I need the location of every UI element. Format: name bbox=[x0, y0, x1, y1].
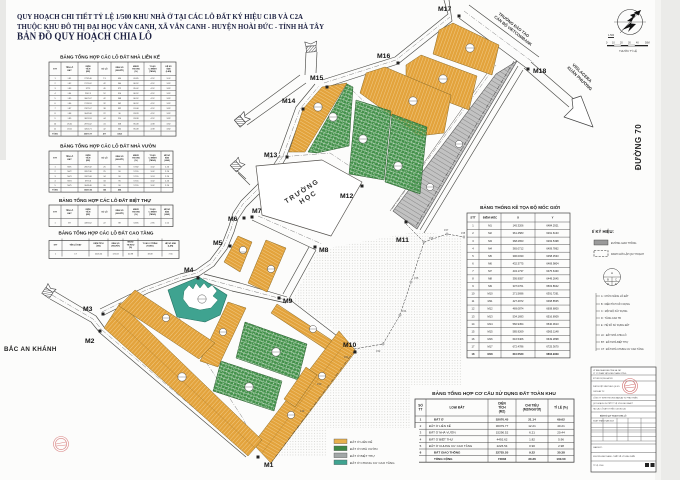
svg-text:M3: M3 bbox=[488, 239, 492, 243]
svg-text:(LẦN): (LẦN) bbox=[164, 159, 170, 162]
svg-text:X: X bbox=[517, 215, 519, 219]
svg-text:3042.08: 3042.08 bbox=[84, 113, 92, 115]
svg-text:B: B bbox=[607, 278, 609, 282]
svg-text:M18: M18 bbox=[533, 68, 546, 75]
svg-text:155: 155 bbox=[414, 276, 419, 280]
svg-text:HỆ SỐ: HỆ SỐ bbox=[164, 208, 171, 211]
svg-text:ĐẤT Ở CHUNG CƯ CAO TẦNG: ĐẤT Ở CHUNG CƯ CAO TẦNG bbox=[429, 443, 473, 448]
svg-text:2226.54: 2226.54 bbox=[95, 253, 103, 255]
svg-text:BẢNG THỐNG KÊ TỌA ĐỘ MỐC GIỚI: BẢNG THỐNG KÊ TỌA ĐỘ MỐC GIỚI bbox=[480, 203, 560, 210]
svg-text:BT : ĐẤT NHÀ BIỆT THỰ: BT : ĐẤT NHÀ BIỆT THỰ bbox=[601, 341, 628, 344]
svg-text:2171.02: 2171.02 bbox=[84, 83, 92, 85]
svg-text:ĐẤT Ở LIÊN KẾ: ĐẤT Ở LIÊN KẾ bbox=[429, 423, 451, 428]
svg-text:M15: M15 bbox=[310, 75, 323, 82]
svg-text:(%): (%) bbox=[129, 247, 132, 249]
svg-text:M4: M4 bbox=[488, 246, 492, 250]
svg-text:LK : ĐẤT NHÀ CHIA LÔ: LK : ĐẤT NHÀ CHIA LÔ bbox=[601, 334, 627, 337]
svg-text:6291.6133: 6291.6133 bbox=[546, 231, 559, 235]
svg-text:NGUYỄN VĂN THÀNH - THIẾT KẾ: V: NGUYỄN VĂN THÀNH - THIẾT KẾ: VŨ VĂN CHIẾ… bbox=[593, 455, 636, 458]
svg-text:NGÀY THÁNG NĂM 2008: NGÀY THÁNG NĂM 2008 bbox=[593, 420, 614, 423]
svg-text:5.96: 5.96 bbox=[558, 437, 564, 441]
svg-text:(M2/NGƯỜI): (M2/NGƯỜI) bbox=[523, 407, 541, 412]
svg-text:85.02: 85.02 bbox=[133, 88, 139, 90]
svg-text:(M2): (M2) bbox=[86, 160, 90, 162]
svg-text:6484.2921: 6484.2921 bbox=[546, 224, 559, 228]
svg-text:616.5406: 616.5406 bbox=[513, 337, 524, 341]
svg-text:365.0712: 365.0712 bbox=[513, 246, 524, 250]
svg-text:C.TRÌNH: C.TRÌNH bbox=[148, 68, 157, 71]
svg-text:469.0874: 469.0874 bbox=[513, 307, 524, 311]
svg-text:3202.71: 3202.71 bbox=[84, 128, 92, 130]
svg-text:(NGƯỜI): (NGƯỜI) bbox=[111, 245, 120, 248]
svg-text:(LẦN): (LẦN) bbox=[166, 70, 172, 73]
svg-text:6565.1148: 6565.1148 bbox=[546, 329, 559, 333]
svg-text:M17: M17 bbox=[438, 6, 451, 13]
svg-text:52070.45: 52070.45 bbox=[496, 418, 509, 422]
svg-text:BẢNG TỔNG HỢP CÁC LÔ ĐẤT NHÀ V: BẢNG TỔNG HỢP CÁC LÔ ĐẤT NHÀ VƯỜN bbox=[60, 142, 156, 149]
svg-text:BẢNG TỔNG HỢP CÁC LÔ ĐẤT NHÀ L: BẢNG TỔNG HỢP CÁC LÔ ĐẤT NHÀ LIÊN KẾ bbox=[60, 53, 160, 60]
svg-text:83.38: 83.38 bbox=[133, 118, 139, 120]
svg-text:TÍCH: TÍCH bbox=[86, 68, 91, 71]
svg-text:M11: M11 bbox=[488, 299, 493, 303]
svg-text:2.98: 2.98 bbox=[558, 444, 564, 448]
svg-text:M18: M18 bbox=[487, 352, 493, 356]
svg-text:M16: M16 bbox=[487, 337, 493, 341]
svg-text:174.03: 174.03 bbox=[112, 253, 119, 255]
svg-text:156: 156 bbox=[429, 236, 434, 240]
svg-text:6469.9804: 6469.9804 bbox=[546, 261, 559, 265]
svg-text:TÊN LÔ: TÊN LÔ bbox=[66, 66, 74, 69]
svg-text:57.55: 57.55 bbox=[133, 171, 139, 173]
svg-text:SỐ LÔ: SỐ LÔ bbox=[101, 211, 108, 214]
svg-text:(M2): (M2) bbox=[96, 246, 100, 248]
svg-text:HỆ SỐ SDĐ: HỆ SỐ SDĐ bbox=[165, 242, 177, 245]
svg-text:30.36: 30.36 bbox=[528, 457, 536, 461]
svg-text:D: D bbox=[607, 282, 609, 286]
svg-text:(TẦNG): (TẦNG) bbox=[149, 213, 156, 216]
svg-text:6468.8535: 6468.8535 bbox=[546, 299, 559, 303]
svg-text:E : HỆ SỐ SỬ DỤNG ĐẤT: E : HỆ SỐ SỬ DỤNG ĐẤT bbox=[601, 324, 630, 327]
svg-text:2176.18: 2176.18 bbox=[84, 103, 92, 105]
svg-text:151: 151 bbox=[344, 355, 349, 359]
svg-text:ĐẤT Ở: ĐẤT Ở bbox=[434, 417, 444, 422]
svg-text:2657.36: 2657.36 bbox=[84, 171, 92, 173]
svg-text:D : TẦNG CAO TB: D : TẦNG CAO TB bbox=[601, 317, 621, 320]
svg-text:TÊN LÔ: TÊN LÔ bbox=[66, 209, 74, 212]
svg-text:ĐẤT Ở BIỆT THỰ: ĐẤT Ở BIỆT THỰ bbox=[350, 453, 375, 458]
svg-text:CHỦ ĐẦU TƯ:: CHỦ ĐẦU TƯ: bbox=[593, 390, 605, 393]
svg-text:DÂN SỐ: DÂN SỐ bbox=[112, 242, 120, 245]
svg-text:M5: M5 bbox=[488, 254, 492, 258]
svg-text:610.5530: 610.5530 bbox=[513, 352, 524, 356]
svg-text:TỔNG: TỔNG bbox=[52, 132, 58, 135]
svg-text:QUY HOẠCH CHI TIẾT TỶ LỆ 1/500: QUY HOẠCH CHI TIẾT TỶ LỆ 1/500 KHU NHÀ Ở… bbox=[17, 11, 303, 21]
svg-text:M1: M1 bbox=[488, 224, 492, 228]
svg-text:534.1693: 534.1693 bbox=[513, 314, 524, 318]
svg-text:42.88: 42.88 bbox=[128, 253, 134, 255]
svg-text:M9: M9 bbox=[283, 298, 293, 305]
svg-text:80.92: 80.92 bbox=[133, 93, 139, 95]
svg-text:361.4583: 361.4583 bbox=[513, 231, 524, 235]
svg-text:TB KHU: TB KHU bbox=[132, 69, 140, 71]
svg-text:M7: M7 bbox=[252, 208, 262, 215]
svg-text:M11: M11 bbox=[396, 237, 409, 244]
svg-text:M7: M7 bbox=[488, 269, 492, 273]
svg-text:Y: Y bbox=[552, 215, 554, 219]
svg-text:20.44: 20.44 bbox=[557, 431, 565, 435]
svg-text:427.4972: 427.4972 bbox=[513, 299, 524, 303]
svg-text:M5: M5 bbox=[213, 240, 223, 247]
svg-text:T.CAO C.TRÌNH: T.CAO C.TRÌNH bbox=[143, 242, 158, 245]
svg-text:80.92: 80.92 bbox=[133, 98, 139, 100]
svg-text:3007.07: 3007.07 bbox=[84, 98, 92, 100]
svg-text:M14: M14 bbox=[487, 322, 493, 326]
svg-text:2732.46: 2732.46 bbox=[84, 78, 92, 80]
svg-text:M1: M1 bbox=[264, 462, 274, 469]
svg-text:154: 154 bbox=[402, 309, 407, 313]
svg-text:6540.0613: 6540.0613 bbox=[546, 322, 559, 326]
svg-text:M12: M12 bbox=[487, 307, 493, 311]
svg-text:M12: M12 bbox=[340, 193, 353, 200]
svg-text:ĐẤT GIAO THÔNG: ĐẤT GIAO THÔNG bbox=[434, 450, 461, 455]
svg-text:53.85: 53.85 bbox=[133, 222, 139, 224]
svg-text:UỶ BAN NHÂN DÂN TỈNH HÀ TÂY: UỶ BAN NHÂN DÂN TỈNH HÀ TÂY bbox=[593, 369, 622, 372]
svg-text:BẢNG TỔNG HỢP CÁC LÔ ĐẤT BIỆT: BẢNG TỔNG HỢP CÁC LÔ ĐẤT BIỆT THỰ bbox=[59, 196, 151, 203]
svg-text:30079.77: 30079.77 bbox=[496, 424, 509, 428]
svg-text:ĐIỂM MỐC: ĐIỂM MỐC bbox=[483, 214, 497, 219]
svg-text:M4: M4 bbox=[184, 267, 194, 274]
svg-text:74803: 74803 bbox=[498, 457, 507, 461]
svg-text:BẢNG TỔNG HỢP CÁC LÔ ĐẤT CAO T: BẢNG TỔNG HỢP CÁC LÔ ĐẤT CAO TẦNG bbox=[59, 229, 154, 236]
svg-text:85.08: 85.08 bbox=[133, 123, 139, 125]
svg-text:M13: M13 bbox=[264, 152, 277, 159]
svg-text:432.3775: 432.3775 bbox=[513, 261, 524, 265]
svg-text:2142.5: 2142.5 bbox=[85, 93, 92, 95]
svg-text:(TẦNG): (TẦNG) bbox=[147, 245, 154, 248]
svg-text:CT CỔ PHẦN TẬP ĐOÀN THÀNH CÔNG: CT CỔ PHẦN TẬP ĐOÀN THÀNH CÔNG bbox=[593, 372, 627, 375]
svg-text:T.CAO: T.CAO bbox=[150, 208, 156, 211]
svg-text:15290.52: 15290.52 bbox=[496, 431, 509, 435]
svg-text:PHÊ DUYỆT KÈM THEO QĐ SỐ:: PHÊ DUYỆT KÈM THEO QĐ SỐ: bbox=[593, 385, 620, 388]
svg-text:BẢNG TỔNG HỢP CƠ CẤU SỬ DỤNG Đ: BẢNG TỔNG HỢP CƠ CẤU SỬ DỤNG ĐẤT TOÀN KH… bbox=[432, 390, 556, 397]
svg-text:M6: M6 bbox=[488, 261, 492, 265]
svg-text:BẢN ĐỒ QUY HOẠCH CHIA LÔ: BẢN ĐỒ QUY HOẠCH CHIA LÔ bbox=[17, 30, 152, 43]
svg-text:6516.6909: 6516.6909 bbox=[546, 314, 559, 318]
svg-text:(TẦNG): (TẦNG) bbox=[149, 159, 156, 162]
svg-text:560.9454: 560.9454 bbox=[513, 322, 524, 326]
svg-text:STT: STT bbox=[470, 215, 476, 219]
svg-text:DÂN SỐ: DÂN SỐ bbox=[116, 155, 124, 158]
svg-text:ĐƯỜNG GIAO THÔNG: ĐƯỜNG GIAO THÔNG bbox=[611, 242, 636, 245]
svg-text:18.08: 18.08 bbox=[147, 253, 153, 255]
svg-text:57.55: 57.55 bbox=[133, 180, 139, 182]
svg-text:C.TRÌNH: C.TRÌNH bbox=[148, 157, 157, 160]
svg-text:M15: M15 bbox=[487, 329, 493, 333]
svg-text:337.0701: 337.0701 bbox=[513, 284, 524, 288]
svg-text:(TẦNG): (TẦNG) bbox=[149, 70, 156, 73]
svg-text:TỔNG: TỔNG bbox=[52, 189, 58, 192]
svg-text:SỐ LÔ: SỐ LÔ bbox=[101, 157, 108, 160]
svg-text:2657.32: 2657.32 bbox=[84, 167, 92, 169]
svg-text:83.28: 83.28 bbox=[133, 113, 139, 115]
svg-text:ĐẤT Ở NHÀ VƯỜN: ĐẤT Ở NHÀ VƯỜN bbox=[350, 446, 378, 451]
svg-text:TỈ LỆ (%): TỈ LỆ (%) bbox=[554, 405, 568, 410]
svg-text:30.38: 30.38 bbox=[557, 451, 565, 455]
svg-text:81.08: 81.08 bbox=[133, 108, 139, 110]
svg-text:M9: M9 bbox=[488, 284, 492, 288]
svg-text:SỐ LÔ: SỐ LÔ bbox=[101, 68, 108, 71]
svg-text:(%): (%) bbox=[134, 160, 137, 162]
svg-text:SỞ XÂY DỰNG HÀ TÂY: SỞ XÂY DỰNG HÀ TÂY bbox=[593, 377, 614, 380]
svg-text:21.14: 21.14 bbox=[528, 418, 536, 422]
svg-text:A: A bbox=[611, 271, 613, 275]
svg-text:672.4786: 672.4786 bbox=[513, 345, 524, 349]
svg-text:(%): (%) bbox=[134, 71, 137, 73]
svg-text:TÍCH: TÍCH bbox=[86, 157, 91, 160]
svg-text:9.22: 9.22 bbox=[529, 451, 535, 455]
svg-text:TỔNG CỘNG: TỔNG CỘNG bbox=[434, 456, 453, 461]
svg-text:TT: TT bbox=[419, 408, 423, 412]
svg-text:396.0030: 396.0030 bbox=[513, 254, 524, 258]
svg-text:149: 149 bbox=[300, 409, 305, 413]
svg-text:12.21: 12.21 bbox=[528, 424, 536, 428]
svg-text:M3: M3 bbox=[83, 306, 93, 313]
svg-text:M16: M16 bbox=[377, 53, 390, 60]
svg-text:C : MẬT ĐỘ XÂY DỰNG: C : MẬT ĐỘ XÂY DỰNG bbox=[601, 310, 628, 313]
svg-text:DIỆN: DIỆN bbox=[86, 208, 91, 211]
svg-text:M2: M2 bbox=[488, 231, 492, 235]
svg-text:E: E bbox=[615, 282, 617, 286]
svg-text:6409.7862: 6409.7862 bbox=[546, 246, 559, 250]
svg-text:(NGƯỜI): (NGƯỜI) bbox=[115, 69, 124, 72]
svg-text:2871.02: 2871.02 bbox=[84, 123, 92, 125]
svg-text:15290.52: 15290.52 bbox=[84, 190, 93, 192]
svg-text:C: C bbox=[615, 278, 617, 282]
svg-text:ĐẤT Ở CHUNG CƯ CAO TẦNG: ĐẤT Ở CHUNG CƯ CAO TẦNG bbox=[350, 460, 395, 465]
svg-text:GIÁM ĐỐC:: GIÁM ĐỐC: bbox=[593, 446, 603, 449]
svg-text:100.00: 100.00 bbox=[556, 457, 566, 461]
svg-text:6475.6430: 6475.6430 bbox=[546, 269, 559, 273]
svg-text:2327.07: 2327.07 bbox=[84, 108, 92, 110]
svg-text:4492.62: 4492.62 bbox=[497, 437, 508, 441]
svg-text:SDĐ: SDĐ bbox=[166, 69, 171, 71]
svg-text:DIỆN: DIỆN bbox=[86, 154, 91, 157]
svg-text:3773.6: 3773.6 bbox=[85, 180, 92, 182]
svg-text:DIỆN TÍCH: DIỆN TÍCH bbox=[94, 242, 105, 245]
svg-text:57.82: 57.82 bbox=[133, 167, 139, 169]
svg-text:M8: M8 bbox=[488, 277, 492, 281]
svg-text:RANH GIỚI LẬP QUY HOẠCH: RANH GIỚI LẬP QUY HOẠCH bbox=[611, 253, 644, 256]
svg-text:ĐẤT Ở LIÊN KẾ: ĐẤT Ở LIÊN KẾ bbox=[350, 439, 372, 444]
svg-text:145.3206: 145.3206 bbox=[513, 224, 524, 228]
svg-text:6608.6800: 6608.6800 bbox=[546, 307, 559, 311]
svg-text:69.85: 69.85 bbox=[133, 78, 139, 80]
svg-text:1.82: 1.82 bbox=[529, 437, 535, 441]
svg-text:6503.8642: 6503.8642 bbox=[546, 284, 559, 288]
svg-text:80.92: 80.92 bbox=[133, 103, 139, 105]
svg-text:M2: M2 bbox=[85, 338, 95, 345]
svg-text:TẠI CÁC LÔ ĐẤT KÝ HIỆU C1B VÀ: TẠI CÁC LÔ ĐẤT KÝ HIỆU C1B VÀ C2A bbox=[593, 408, 626, 411]
svg-text:395.9057: 395.9057 bbox=[513, 277, 524, 281]
svg-text:85.08: 85.08 bbox=[133, 128, 139, 130]
svg-text:(M2): (M2) bbox=[499, 410, 506, 414]
svg-text:T.CAO: T.CAO bbox=[150, 154, 156, 157]
svg-text:3043.46: 3043.46 bbox=[84, 185, 92, 187]
svg-text:C.TRÌNH: C.TRÌNH bbox=[148, 211, 157, 214]
svg-text:2226.54: 2226.54 bbox=[497, 444, 508, 448]
svg-text:57.55: 57.55 bbox=[133, 185, 139, 187]
svg-text:6725.3670: 6725.3670 bbox=[546, 345, 559, 349]
svg-text:ĐƯỜNG 70: ĐƯỜNG 70 bbox=[634, 124, 643, 170]
svg-text:LOẠI ĐẤT: LOẠI ĐẤT bbox=[449, 406, 464, 410]
svg-text:ĐẤT Ở NHÀ VƯỜN: ĐẤT Ở NHÀ VƯỜN bbox=[429, 430, 456, 435]
svg-text:271.5696: 271.5696 bbox=[513, 292, 524, 296]
svg-text:(M2): (M2) bbox=[86, 214, 90, 216]
svg-text:A : CHỨC NĂNG LÔ ĐẤT: A : CHỨC NĂNG LÔ ĐẤT bbox=[601, 295, 629, 298]
svg-text:M8: M8 bbox=[319, 247, 329, 254]
svg-text:(LẦN): (LẦN) bbox=[164, 213, 170, 216]
svg-text:80.92: 80.92 bbox=[133, 83, 139, 85]
svg-text:3327.08: 3327.08 bbox=[84, 176, 92, 178]
svg-text:TÍCH: TÍCH bbox=[86, 211, 91, 214]
svg-text:150: 150 bbox=[317, 382, 322, 386]
svg-text:CÔNG TY TNHH THƯƠNG MẠI ĐẦU TƯ: CÔNG TY TNHH THƯƠNG MẠI ĐẦU TƯ PHÁT TRIỂ… bbox=[593, 397, 638, 400]
svg-text:152: 152 bbox=[376, 349, 381, 353]
svg-text:M14: M14 bbox=[282, 98, 295, 105]
svg-text:57.55: 57.55 bbox=[133, 176, 139, 178]
svg-text:DÂN SỐ: DÂN SỐ bbox=[116, 209, 124, 212]
svg-text:CT : ĐẤT NHÀ CHUNG CƯ CAO TẦNG: CT : ĐẤT NHÀ CHUNG CƯ CAO TẦNG bbox=[601, 348, 644, 351]
svg-text:6.21: 6.21 bbox=[529, 431, 535, 435]
svg-text:ĐẤT Ở BIỆT THỰ: ĐẤT Ở BIỆT THỰ bbox=[429, 436, 454, 441]
svg-text:6449.2645: 6449.2645 bbox=[546, 277, 559, 281]
svg-text:(NGƯỜI): (NGƯỜI) bbox=[115, 212, 124, 215]
svg-text:585.9269: 585.9269 bbox=[513, 329, 524, 333]
svg-text:TÊN LÔ: TÊN LÔ bbox=[66, 155, 74, 158]
svg-text:THUỘC KHU ĐÔ THỊ ĐẠI HỌC VÂN C: THUỘC KHU ĐÔ THỊ ĐẠI HỌC VÂN CANH, XÃ VĂ… bbox=[17, 21, 324, 31]
svg-text:30079.77: 30079.77 bbox=[84, 133, 93, 135]
svg-text:22725.55: 22725.55 bbox=[496, 451, 509, 455]
svg-text:I/ KÝ HIỆU:: I/ KÝ HIỆU: bbox=[592, 229, 614, 234]
svg-text:(NGƯỜI): (NGƯỜI) bbox=[115, 158, 124, 161]
svg-text:368.2653: 368.2653 bbox=[513, 239, 524, 243]
svg-text:6458.3533: 6458.3533 bbox=[546, 254, 559, 258]
svg-text:M6: M6 bbox=[228, 216, 238, 223]
svg-text:TỶ LỆ: 1/500: TỶ LỆ: 1/500 bbox=[593, 464, 604, 467]
svg-text:6391.7261: 6391.7261 bbox=[546, 292, 559, 296]
svg-text:40.21: 40.21 bbox=[557, 424, 565, 428]
svg-text:BẮC AN KHÁNH: BẮC AN KHÁNH bbox=[4, 345, 57, 353]
svg-text:69.62: 69.62 bbox=[557, 418, 565, 422]
svg-text:434.1737: 434.1737 bbox=[513, 269, 524, 273]
svg-text:DÂN SỐ: DÂN SỐ bbox=[116, 66, 124, 69]
svg-text:6293.5498: 6293.5498 bbox=[546, 239, 559, 243]
svg-text:BẢN ĐỒ QUY HOẠCH CHIA LÔ: BẢN ĐỒ QUY HOẠCH CHIA LÔ bbox=[600, 415, 627, 418]
svg-text:(%): (%) bbox=[134, 214, 137, 216]
svg-text:6649.2898: 6649.2898 bbox=[546, 337, 559, 341]
svg-text:1-500: 1-500 bbox=[608, 34, 615, 37]
svg-text:6803.9329: 6803.9329 bbox=[546, 352, 559, 356]
svg-text:3621.18: 3621.18 bbox=[84, 118, 92, 120]
svg-text:(M2): (M2) bbox=[86, 71, 90, 73]
svg-text:157: 157 bbox=[444, 228, 449, 232]
svg-text:50M: 50M bbox=[645, 42, 650, 45]
svg-text:M10: M10 bbox=[487, 292, 493, 296]
svg-text:TÊN LÔ ĐẤT: TÊN LÔ ĐẤT bbox=[70, 243, 83, 246]
svg-text:M17: M17 bbox=[487, 345, 493, 349]
svg-text:M13: M13 bbox=[487, 314, 493, 318]
svg-text:QUY HOẠCH CHI TIẾT TỶ LỆ 1/500: QUY HOẠCH CHI TIẾT TỶ LỆ 1/500 KHU NHÀ Ở bbox=[593, 402, 633, 405]
svg-text:4492.62: 4492.62 bbox=[84, 222, 92, 224]
svg-text:HỆ SỐ: HỆ SỐ bbox=[164, 154, 171, 157]
svg-text:0.90: 0.90 bbox=[529, 444, 535, 448]
svg-text:M10: M10 bbox=[343, 342, 356, 349]
svg-text:B : DIỆN TÍCH XÂY DỰNG: B : DIỆN TÍCH XÂY DỰNG bbox=[601, 303, 630, 306]
svg-text:(LẦN): (LẦN) bbox=[168, 245, 174, 248]
